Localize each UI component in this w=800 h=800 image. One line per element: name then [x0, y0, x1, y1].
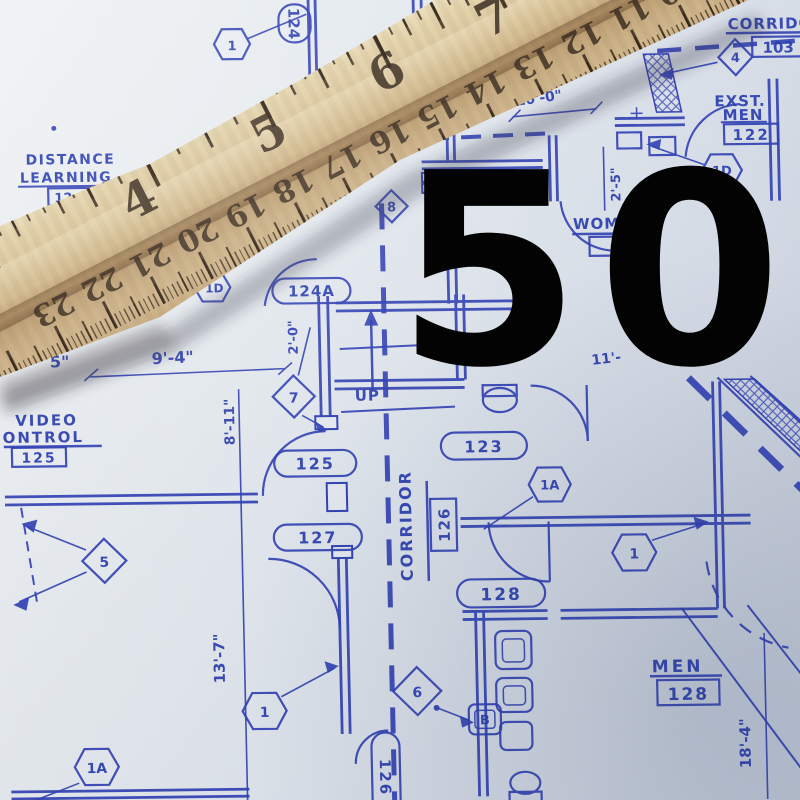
overlay-number: 50 [396, 138, 798, 404]
room-number-124: 124 [284, 8, 303, 40]
room-number-123: 123 [464, 437, 504, 456]
dim-8-11: 8'-11" [222, 399, 239, 446]
room-number-103: 103 [762, 38, 794, 56]
marker-label-b: B [480, 713, 490, 728]
room-label-video: VIDEO [15, 411, 78, 430]
door-number-126-bottom: 126 [376, 759, 395, 797]
label-up: UP [355, 386, 381, 404]
door-number-127: 127 [298, 528, 338, 547]
dim-2-0: 2'-0" [286, 320, 302, 354]
marker-label-4: 4 [731, 51, 740, 66]
marker-label-1a-center: 1A [540, 478, 559, 493]
room-label-distance: DISTANCE [25, 152, 115, 169]
room-number-distance: 12 [54, 191, 72, 206]
marker-label-1-right: 1 [629, 546, 639, 562]
marker-label-1a-bottom: 1A [86, 761, 107, 777]
marker-label-7: 7 [289, 390, 299, 406]
photo-blueprint-ruler: DISTANCE LEARNING 12 124 1 CORRIDOR 103 … [0, 0, 800, 800]
dim-18-4: 18'-4" [736, 718, 755, 768]
room-label-control: CONTROL [0, 428, 84, 447]
label-corridor-main: CORRIDOR [395, 470, 416, 581]
door-number-128: 128 [480, 585, 522, 605]
room-number-124a: 124A [288, 282, 335, 301]
marker-label-5: 5 [99, 555, 109, 571]
room-label-learning: LEARNING [20, 170, 113, 187]
room-number-126: 126 [435, 507, 454, 542]
marker-label-1d-left: 1D [205, 281, 224, 295]
door-number-125: 125 [295, 454, 335, 473]
marker-label-1-top: 1 [227, 39, 236, 54]
dim-13-7: 13'-7" [210, 633, 229, 683]
room-number-125-box: 125 [21, 450, 57, 466]
room-label-men: MEN [652, 657, 704, 678]
marker-label-6: 6 [412, 685, 422, 701]
marker-label-1-bottomleft: 1 [260, 705, 270, 721]
room-number-128-men: 128 [667, 685, 709, 705]
